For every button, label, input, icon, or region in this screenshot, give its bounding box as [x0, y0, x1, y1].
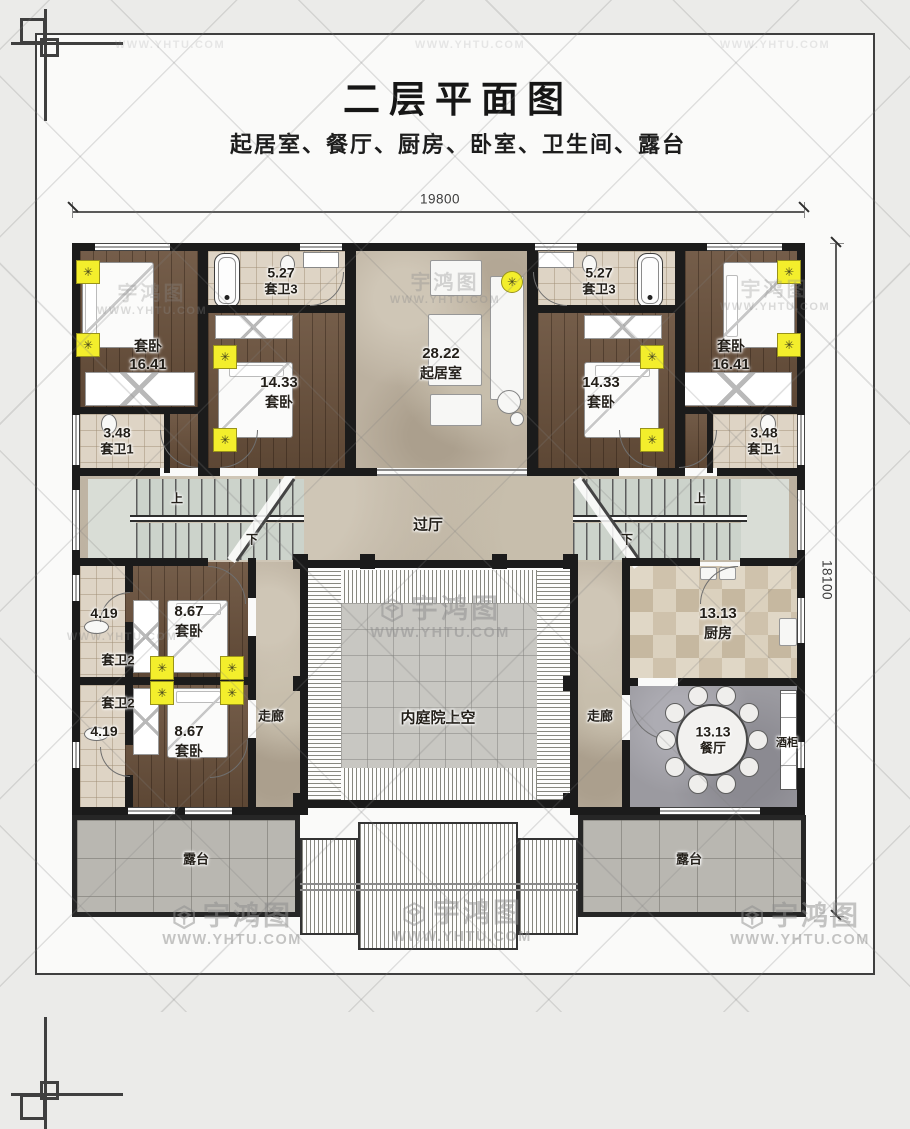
wall — [248, 562, 256, 598]
room-area: 16.41 — [712, 355, 750, 375]
room-area: 28.22 — [420, 344, 462, 364]
opening-sill — [377, 474, 527, 476]
wall — [345, 251, 356, 476]
floor-lamp — [497, 390, 521, 414]
dimension-top: 19800 — [420, 192, 460, 207]
room-label-bath2-upper-name: 套卫2 — [101, 650, 134, 669]
room-label-bath2-upper-area: 4.19 — [90, 605, 117, 621]
wall — [248, 738, 256, 807]
sofa — [430, 260, 482, 296]
ceiling-light-icon: ✳ — [150, 656, 174, 680]
dining-chair — [739, 703, 759, 723]
wall — [198, 251, 208, 476]
dining-chair — [716, 774, 736, 794]
wall — [72, 243, 805, 251]
wall — [678, 678, 797, 686]
column — [293, 554, 308, 569]
room-name: 套卧 — [129, 337, 167, 355]
stair-landing — [741, 479, 789, 560]
column — [293, 793, 308, 808]
dimension-right: 18100 — [820, 560, 835, 600]
wall — [258, 468, 377, 476]
ceiling-light-icon: ✳ — [213, 428, 237, 452]
room-name: 起居室 — [420, 364, 462, 382]
room-label-bed-left-inner: 14.33 套卧 — [260, 373, 298, 411]
room-name: 套卧 — [174, 742, 203, 760]
dining-chair — [739, 757, 759, 777]
column — [563, 554, 578, 569]
ceiling-light-icon: ✳ — [150, 681, 174, 705]
dimension-line-top — [72, 211, 805, 213]
room-label-bath2-lower-area: 4.19 — [90, 723, 117, 739]
ceiling-light-icon: ✳ — [640, 428, 664, 452]
wall — [248, 636, 256, 700]
stair-treads — [136, 523, 304, 560]
ceiling-light-icon: ✳ — [213, 345, 237, 369]
room-label-hall: 过厅 — [413, 514, 443, 535]
sink — [84, 620, 109, 634]
wall — [125, 562, 133, 592]
stair-handrail — [130, 515, 304, 522]
room-name: 套卫1 — [100, 442, 133, 459]
stair-handrail — [573, 515, 747, 522]
wall — [208, 305, 345, 313]
fridge — [779, 618, 797, 646]
stair-down-label: 下 — [246, 531, 258, 548]
window — [72, 575, 80, 601]
sofa — [430, 394, 482, 426]
courtyard-floor — [341, 603, 537, 768]
room-area: 5.27 — [582, 263, 615, 281]
room-name: 套卧 — [712, 337, 750, 355]
window — [707, 243, 782, 251]
room-label-corridor-right: 走廊 — [587, 706, 613, 725]
dining-chair — [665, 703, 685, 723]
room-label-bath3-right: 5.27 套卫3 — [582, 263, 615, 298]
courtyard-roof-hatch — [308, 570, 570, 603]
room-name: 套卫1 — [747, 442, 780, 459]
dining-chair — [688, 686, 708, 706]
room-label-dining: 13.13 餐厅 — [695, 722, 730, 757]
room-name: 套卫3 — [582, 282, 615, 299]
canopy-center — [358, 822, 518, 950]
room-area: 16.41 — [129, 355, 167, 375]
wall — [80, 407, 198, 414]
wardrobe — [85, 372, 195, 406]
side-table — [510, 412, 524, 426]
dimension-line-right — [835, 243, 837, 917]
room-label-terrace-left: 露台 — [183, 849, 209, 868]
sink-counter — [538, 252, 574, 268]
dining-chair — [665, 757, 685, 777]
window — [72, 490, 80, 550]
room-label-courtyard: 内庭院上空 — [400, 707, 475, 728]
room-label-bath3-left: 5.27 套卫3 — [264, 263, 297, 298]
stair-treads — [573, 523, 741, 560]
window — [128, 807, 175, 815]
room-area: 8.67 — [174, 722, 203, 742]
room-label-bed-right-outer: 套卧 16.41 — [712, 337, 750, 375]
window — [95, 243, 170, 251]
room-area: 3.48 — [100, 423, 133, 441]
room-label-corridor-left: 走廊 — [258, 706, 284, 725]
bathtub — [637, 253, 663, 308]
canopy-line — [300, 889, 578, 891]
room-label-bath1-left: 3.48 套卫1 — [100, 423, 133, 458]
room-label-wine-cabinet: 酒柜 — [776, 734, 798, 750]
stair-down-label: 下 — [621, 531, 633, 548]
wall — [80, 468, 160, 476]
wall — [198, 468, 220, 476]
stair-up-label: 上 — [171, 490, 183, 507]
room-name: 套卧 — [174, 622, 203, 640]
window — [185, 807, 232, 815]
column — [563, 793, 578, 808]
wall — [685, 407, 797, 414]
room-area: 3.48 — [747, 423, 780, 441]
corridor-floor — [578, 562, 622, 807]
room-label-living: 28.22 起居室 — [420, 344, 462, 382]
wall — [622, 740, 630, 807]
wall — [622, 558, 700, 566]
window — [72, 415, 80, 465]
wall — [300, 800, 578, 808]
room-label-bed-bl-lower: 8.67 套卧 — [174, 722, 203, 760]
wardrobe — [215, 315, 293, 339]
room-area: 14.33 — [582, 373, 620, 393]
window — [797, 598, 805, 643]
room-label-bed-left-outer: 套卧 16.41 — [129, 337, 167, 375]
wall — [630, 678, 638, 686]
room-area: 5.27 — [264, 263, 297, 281]
wardrobe — [584, 315, 662, 339]
wall — [740, 558, 797, 566]
room-label-kitchen: 13.13 厨房 — [699, 604, 737, 642]
sink-counter — [303, 252, 339, 268]
room-name: 餐厅 — [695, 741, 730, 758]
room-label-bed-right-inner: 14.33 套卧 — [582, 373, 620, 411]
room-area: 13.13 — [699, 604, 737, 624]
room-name: 套卧 — [582, 393, 620, 411]
wall — [657, 468, 679, 476]
sofa — [490, 276, 524, 400]
room-label-bath2-lower-name: 套卫2 — [101, 693, 134, 712]
window — [300, 243, 342, 251]
room-label-bath1-right: 3.48 套卫1 — [747, 423, 780, 458]
opening-sill — [377, 469, 527, 471]
ceiling-light-icon: ✳ — [220, 681, 244, 705]
wall — [717, 468, 797, 476]
dining-chair — [656, 730, 676, 750]
wardrobe — [682, 372, 792, 406]
room-area: 8.67 — [174, 602, 203, 622]
wall — [538, 305, 675, 313]
wall — [527, 468, 619, 476]
window — [72, 742, 80, 768]
window — [535, 243, 577, 251]
ceiling-light-icon: ✳ — [777, 260, 801, 284]
floor-plan: ✳✳✳✳✳✳✳✳✳✳✳✳✳ — [0, 0, 910, 1012]
room-area: 14.33 — [260, 373, 298, 393]
ceiling-light-icon: ✳ — [76, 333, 100, 357]
stair-landing — [88, 479, 136, 560]
courtyard-roof-hatch — [308, 768, 570, 800]
wall — [622, 562, 630, 695]
canopy-line — [300, 883, 578, 885]
window — [797, 415, 805, 465]
column — [492, 554, 507, 569]
canopy-wing — [518, 838, 578, 935]
stair-up-label: 上 — [694, 490, 706, 507]
column — [563, 676, 578, 691]
dining-chair — [716, 686, 736, 706]
courtyard-roof-hatch — [308, 570, 341, 800]
wall — [80, 558, 208, 566]
room-label-bed-bl-upper: 8.67 套卧 — [174, 602, 203, 640]
room-name: 厨房 — [699, 624, 737, 642]
room-label-terrace-right: 露台 — [676, 849, 702, 868]
room-area: 13.13 — [695, 722, 730, 740]
ceiling-light-icon: ✳ — [501, 271, 523, 293]
ceiling-light-icon: ✳ — [640, 345, 664, 369]
column — [360, 554, 375, 569]
bathtub — [214, 253, 240, 308]
ceiling-light-icon: ✳ — [76, 260, 100, 284]
window — [660, 807, 760, 815]
ceiling-light-icon: ✳ — [777, 333, 801, 357]
column — [293, 676, 308, 691]
room-name: 套卫3 — [264, 282, 297, 299]
dining-chair — [748, 730, 768, 750]
ceiling-light-icon: ✳ — [220, 656, 244, 680]
window — [797, 742, 805, 768]
wall — [300, 560, 578, 568]
dining-chair — [688, 774, 708, 794]
room-name: 套卧 — [260, 393, 298, 411]
canopy-wing — [300, 838, 358, 935]
window — [797, 490, 805, 550]
